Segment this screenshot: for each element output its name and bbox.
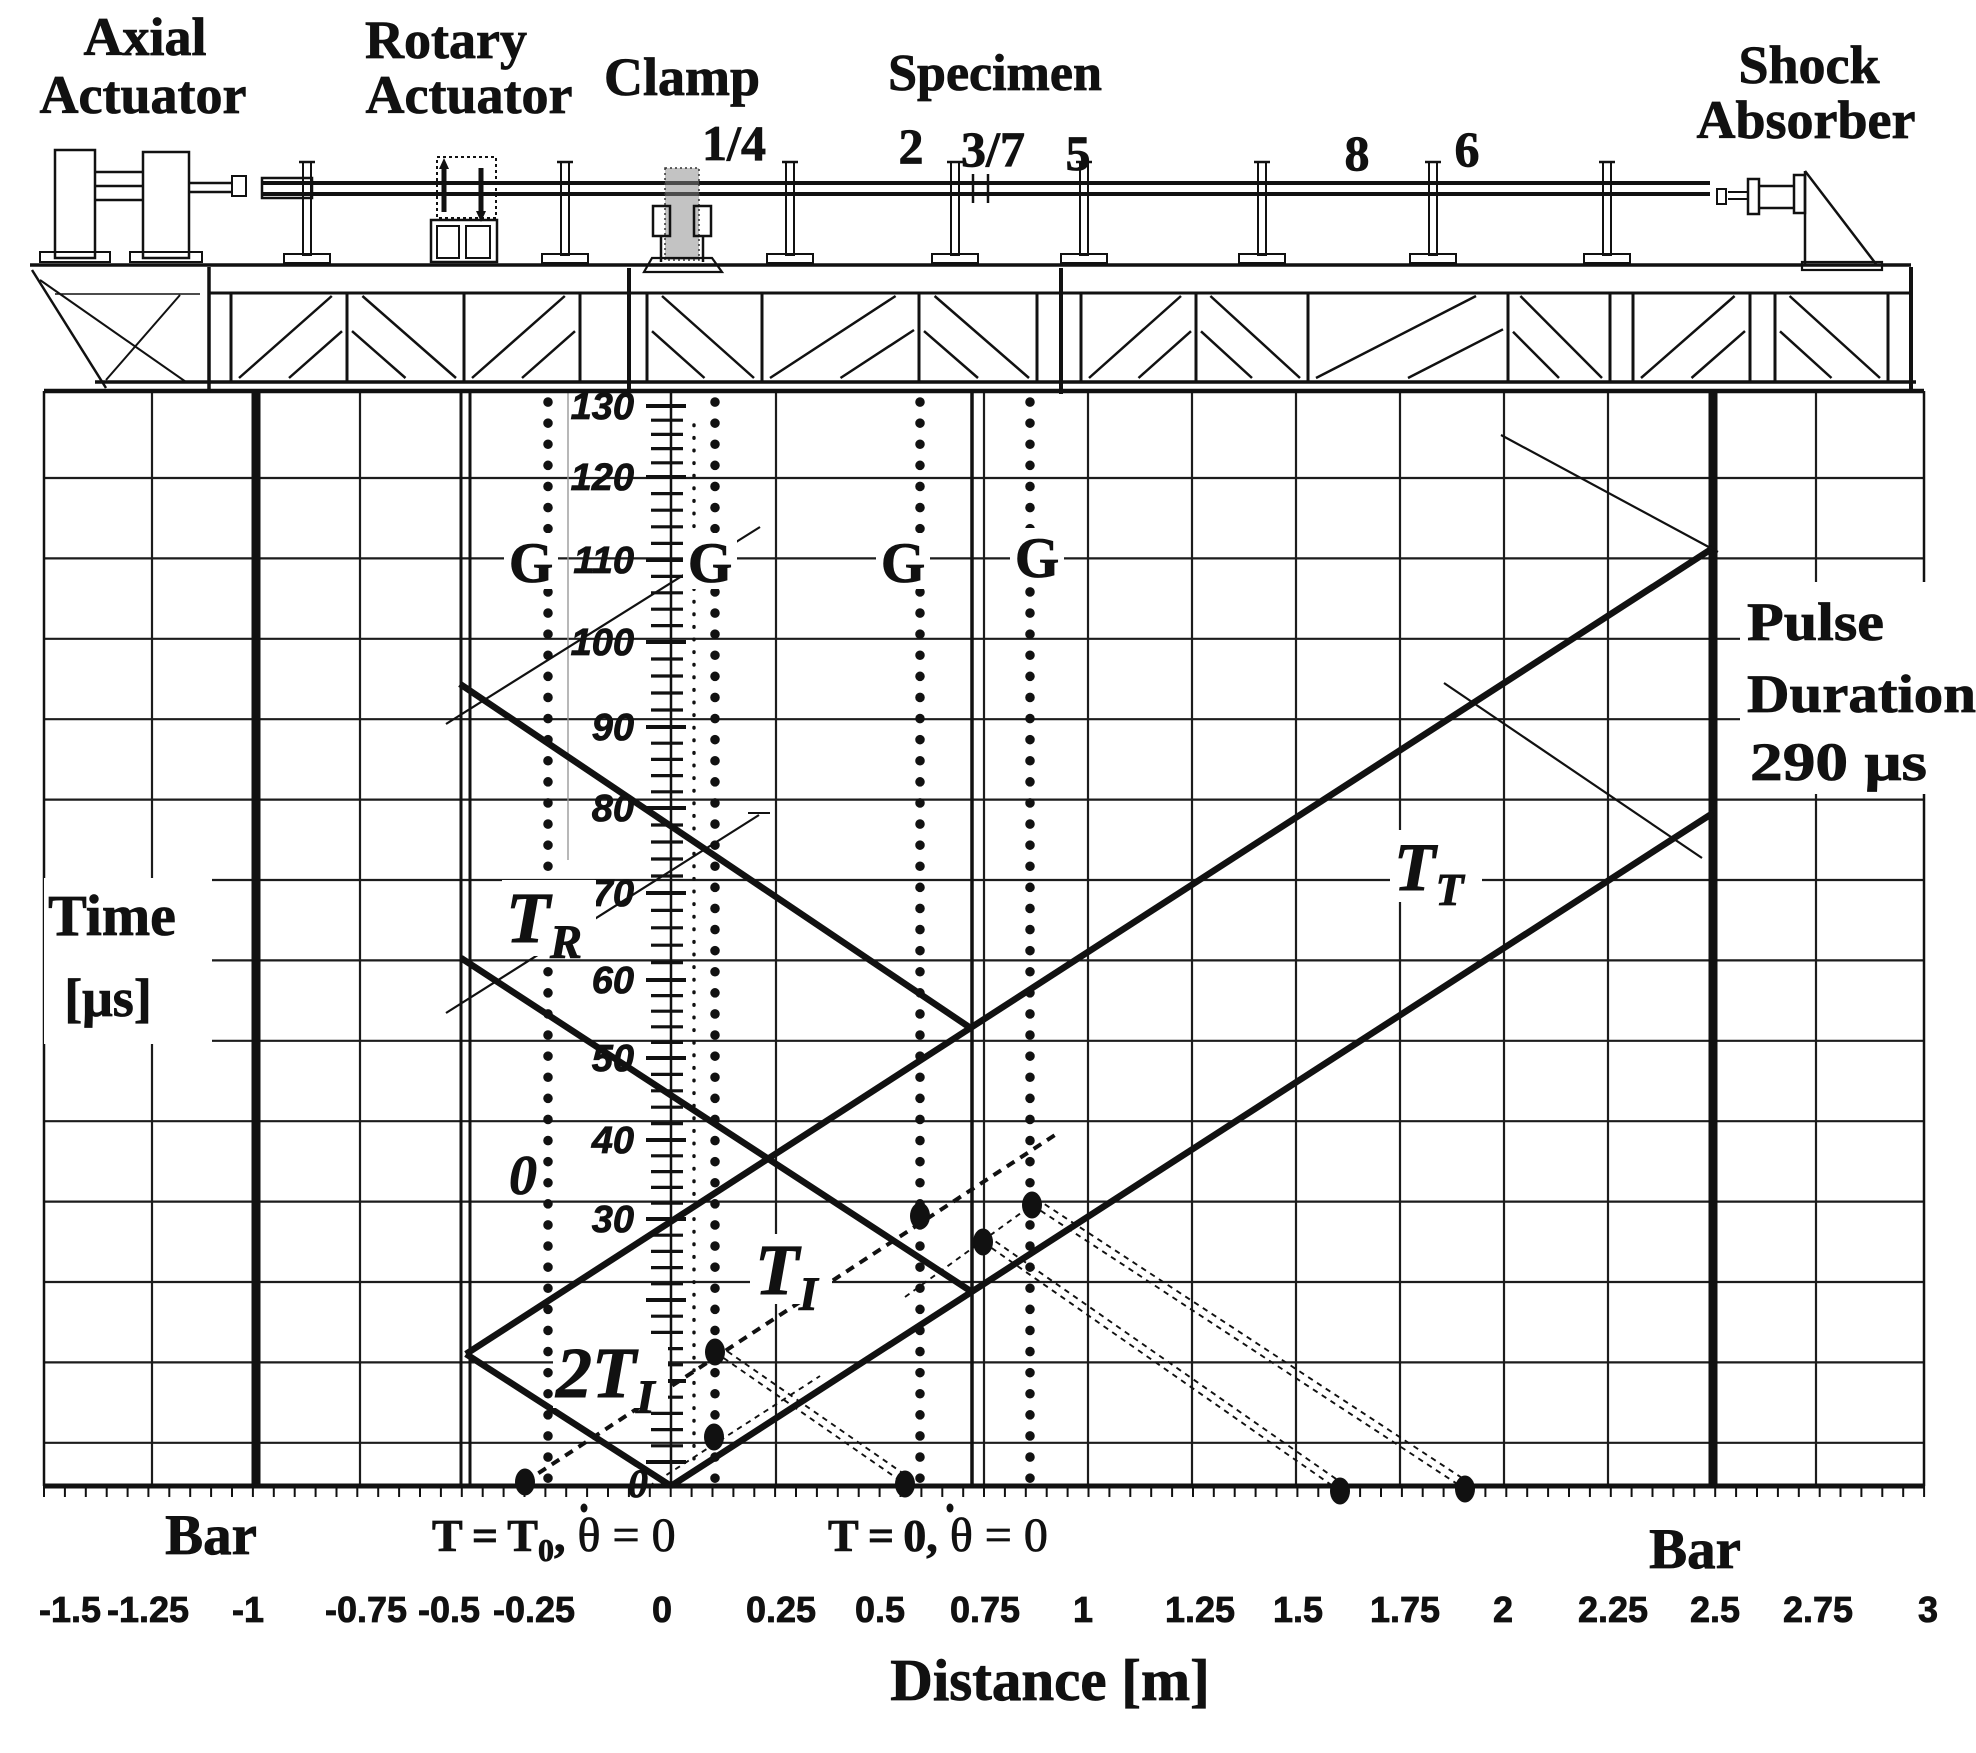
svg-text:3/7: 3/7 [961, 121, 1025, 177]
svg-text:0.75: 0.75 [950, 1589, 1020, 1630]
svg-text:0: 0 [509, 1145, 537, 1207]
svg-text:70: 70 [592, 873, 634, 915]
svg-text:Actuator: Actuator [40, 65, 247, 125]
svg-text:1.5: 1.5 [1273, 1589, 1323, 1630]
svg-text:Rotary: Rotary [365, 10, 527, 70]
svg-text:Duration: Duration [1747, 664, 1976, 724]
svg-text:290 μs: 290 μs [1750, 732, 1927, 792]
svg-text:Absorber: Absorber [1697, 90, 1916, 150]
svg-text:100: 100 [571, 622, 634, 664]
svg-text:0.5: 0.5 [855, 1589, 905, 1630]
svg-text:5: 5 [1066, 125, 1091, 181]
svg-text:Pulse: Pulse [1747, 592, 1884, 652]
svg-text:120: 120 [571, 457, 634, 499]
svg-text:1.75: 1.75 [1370, 1589, 1440, 1630]
svg-text:Actuator: Actuator [366, 65, 573, 125]
svg-text:Clamp: Clamp [604, 47, 760, 107]
svg-text:1/4: 1/4 [702, 115, 766, 171]
svg-text:2: 2 [899, 118, 924, 174]
svg-text:Distance [m]: Distance [m] [890, 1647, 1210, 1713]
svg-text:-1.25: -1.25 [107, 1589, 189, 1630]
svg-text:-0.75: -0.75 [325, 1589, 407, 1630]
svg-text:0.25: 0.25 [746, 1589, 816, 1630]
svg-text:40: 40 [591, 1120, 634, 1162]
svg-text:-0.5: -0.5 [418, 1589, 480, 1630]
svg-text:Axial: Axial [83, 7, 206, 67]
svg-text:2.5: 2.5 [1690, 1589, 1740, 1630]
svg-text:30: 30 [592, 1199, 634, 1241]
svg-text:1: 1 [1073, 1589, 1093, 1630]
svg-text:2.75: 2.75 [1783, 1589, 1853, 1630]
svg-text:Bar: Bar [1649, 1518, 1741, 1581]
svg-text:1.25: 1.25 [1165, 1589, 1235, 1630]
svg-text:50: 50 [592, 1038, 634, 1080]
svg-text:G: G [688, 532, 732, 595]
svg-text:[μs]: [μs] [64, 968, 152, 1028]
svg-text:80: 80 [592, 788, 634, 830]
svg-text:Shock: Shock [1738, 35, 1879, 95]
svg-text:0: 0 [628, 1461, 648, 1506]
svg-text:T = 0, θ = 0: T = 0, θ = 0 [828, 1509, 1048, 1562]
svg-text:2.25: 2.25 [1578, 1589, 1648, 1630]
svg-text:60: 60 [592, 960, 634, 1002]
svg-text:130: 130 [571, 386, 634, 428]
svg-text:2: 2 [1493, 1589, 1513, 1630]
svg-text:Specimen: Specimen [888, 45, 1102, 102]
svg-text:6: 6 [1455, 121, 1480, 177]
svg-text:Time: Time [48, 883, 176, 948]
svg-text:Bar: Bar [165, 1504, 257, 1567]
svg-text:G: G [881, 532, 925, 595]
svg-text:-0.25: -0.25 [493, 1589, 575, 1630]
svg-text:8: 8 [1345, 125, 1370, 181]
svg-text:-1: -1 [232, 1589, 264, 1630]
svg-text:90: 90 [592, 707, 634, 749]
svg-text:G: G [509, 532, 553, 595]
svg-text:0: 0 [652, 1589, 672, 1630]
svg-text:T = T0, θ = 0: T = T0, θ = 0 [432, 1509, 676, 1568]
svg-text:3: 3 [1918, 1589, 1938, 1630]
svg-text:G: G [1015, 527, 1059, 590]
svg-text:110: 110 [573, 540, 634, 582]
svg-text:-1.5: -1.5 [39, 1589, 101, 1630]
